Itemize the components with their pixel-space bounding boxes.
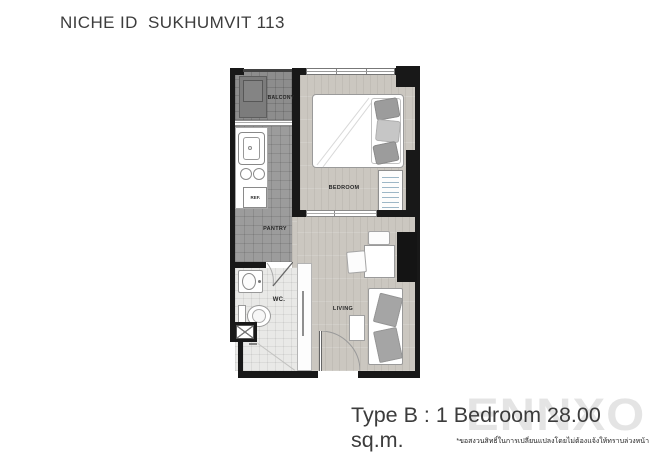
wall-divider-left	[292, 210, 306, 217]
stove-burner-1	[240, 168, 252, 180]
project-title: NICHE ID SUKHUMVIT 113	[60, 13, 285, 33]
kitchen-sink	[238, 132, 265, 165]
column-top-right	[396, 66, 420, 87]
wc-label: WC.	[268, 297, 290, 303]
passage-floor	[292, 212, 297, 268]
desk	[364, 245, 395, 278]
balcony-label: BALCONY	[266, 95, 296, 101]
kitchen-sink-drain	[248, 146, 252, 150]
desk-chair-top	[368, 231, 390, 245]
bedroom-label: BEDROOM	[324, 185, 364, 191]
disclaimer-text: *ขอสงวนสิทธิ์ในการเปลี่ยนแปลงโดยไม่ต้องแ…	[456, 436, 649, 447]
wall-column-living	[397, 232, 417, 282]
sofa	[368, 288, 403, 365]
wc-sink	[238, 270, 263, 293]
pillow-dark-1	[373, 97, 400, 121]
wall-bottom-left	[238, 371, 318, 378]
bedroom-sliding-door	[306, 210, 377, 217]
wardrobe	[378, 170, 403, 211]
sofa-cushion-1	[373, 293, 404, 328]
tiny-label-smudge	[249, 343, 257, 345]
wc-basin	[242, 273, 256, 290]
shower-drain-icon	[236, 325, 254, 339]
pantry-label: PANTRY	[258, 226, 292, 232]
wc-door-swing	[266, 262, 293, 289]
entrance-door-swing	[322, 331, 360, 371]
pillow-light	[375, 119, 401, 143]
desk-chair-left	[346, 250, 367, 274]
bedroom-window	[306, 68, 395, 75]
wall-left-lower	[238, 342, 243, 373]
refrigerator-label: REF.	[250, 195, 260, 200]
bed	[312, 94, 404, 168]
hanging-clothes-icon	[382, 173, 399, 209]
built-in-cabinet	[297, 263, 312, 371]
page: NICHE ID SUKHUMVIT 113	[0, 0, 650, 460]
sofa-cushion-2	[373, 327, 403, 363]
washer-area	[239, 76, 267, 118]
living-label: LIVING	[326, 306, 360, 312]
floor-plan: REF. BALCONY PANTRY WC. BEDROOM LIVING	[230, 66, 420, 378]
wc-faucet-icon	[258, 280, 261, 283]
wall-middle	[292, 68, 300, 212]
refrigerator: REF.	[243, 187, 267, 208]
toilet-seat	[252, 309, 266, 323]
wall-bottom-right	[358, 371, 420, 378]
cabinet-handle	[302, 291, 304, 336]
wall-wc-top	[230, 262, 266, 268]
stove-burner-2	[253, 168, 265, 180]
wall-left	[230, 68, 235, 342]
wall-right-thick	[406, 150, 420, 217]
balcony-railing	[243, 69, 292, 72]
washer-icon	[243, 80, 263, 102]
